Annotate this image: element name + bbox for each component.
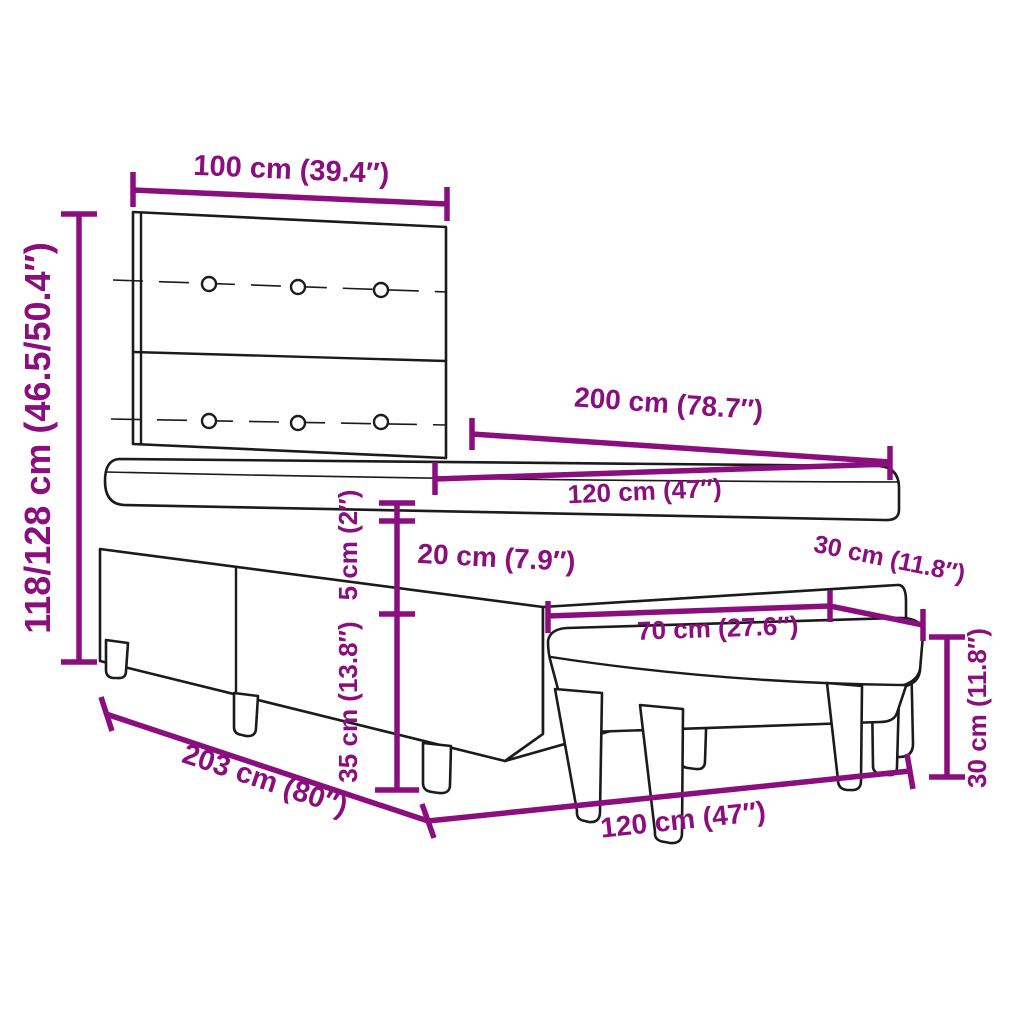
dimension-diagram: 100 cm (39.4″) 118/128 cm (46.5/50.4″) 2…	[0, 0, 1024, 1024]
label-bench-height: 30 cm (11.8″)	[962, 628, 992, 788]
tufting-button-icon	[291, 416, 305, 430]
bed-leg	[234, 693, 258, 736]
tufting-button-icon	[202, 414, 216, 428]
label-base-length: 203 cm (80″)	[178, 738, 351, 823]
label-pillow-top-thickness: 5 cm (2″)	[333, 490, 363, 601]
dim-bench-height-line	[929, 637, 965, 777]
label-bench-seat-depth: 30 cm (11.8″)	[811, 530, 967, 588]
label-overall-height: 118/128 cm (46.5/50.4″)	[17, 242, 58, 634]
headboard	[133, 212, 446, 458]
label-headboard-width: 100 cm (39.4″)	[193, 150, 390, 191]
tufting-button-icon	[291, 280, 305, 294]
dim-overall-height-line	[61, 214, 97, 662]
tufting-button-icon	[202, 277, 216, 291]
label-bench-seat-length: 70 cm (27.6″)	[637, 610, 799, 646]
label-mattress-thickness: 20 cm (7.9″)	[417, 538, 577, 577]
label-bed-length: 200 cm (78.7″)	[573, 381, 764, 425]
tufting-button-icon	[374, 415, 388, 429]
bed-leg	[106, 640, 128, 678]
bed-base-front-face	[100, 549, 543, 761]
diagram-canvas: 100 cm (39.4″) 118/128 cm (46.5/50.4″) 2…	[0, 0, 1024, 1024]
tufting-button-icon	[374, 283, 388, 297]
label-base-height: 35 cm (13.8″)	[333, 621, 363, 782]
bed-leg	[423, 743, 451, 793]
